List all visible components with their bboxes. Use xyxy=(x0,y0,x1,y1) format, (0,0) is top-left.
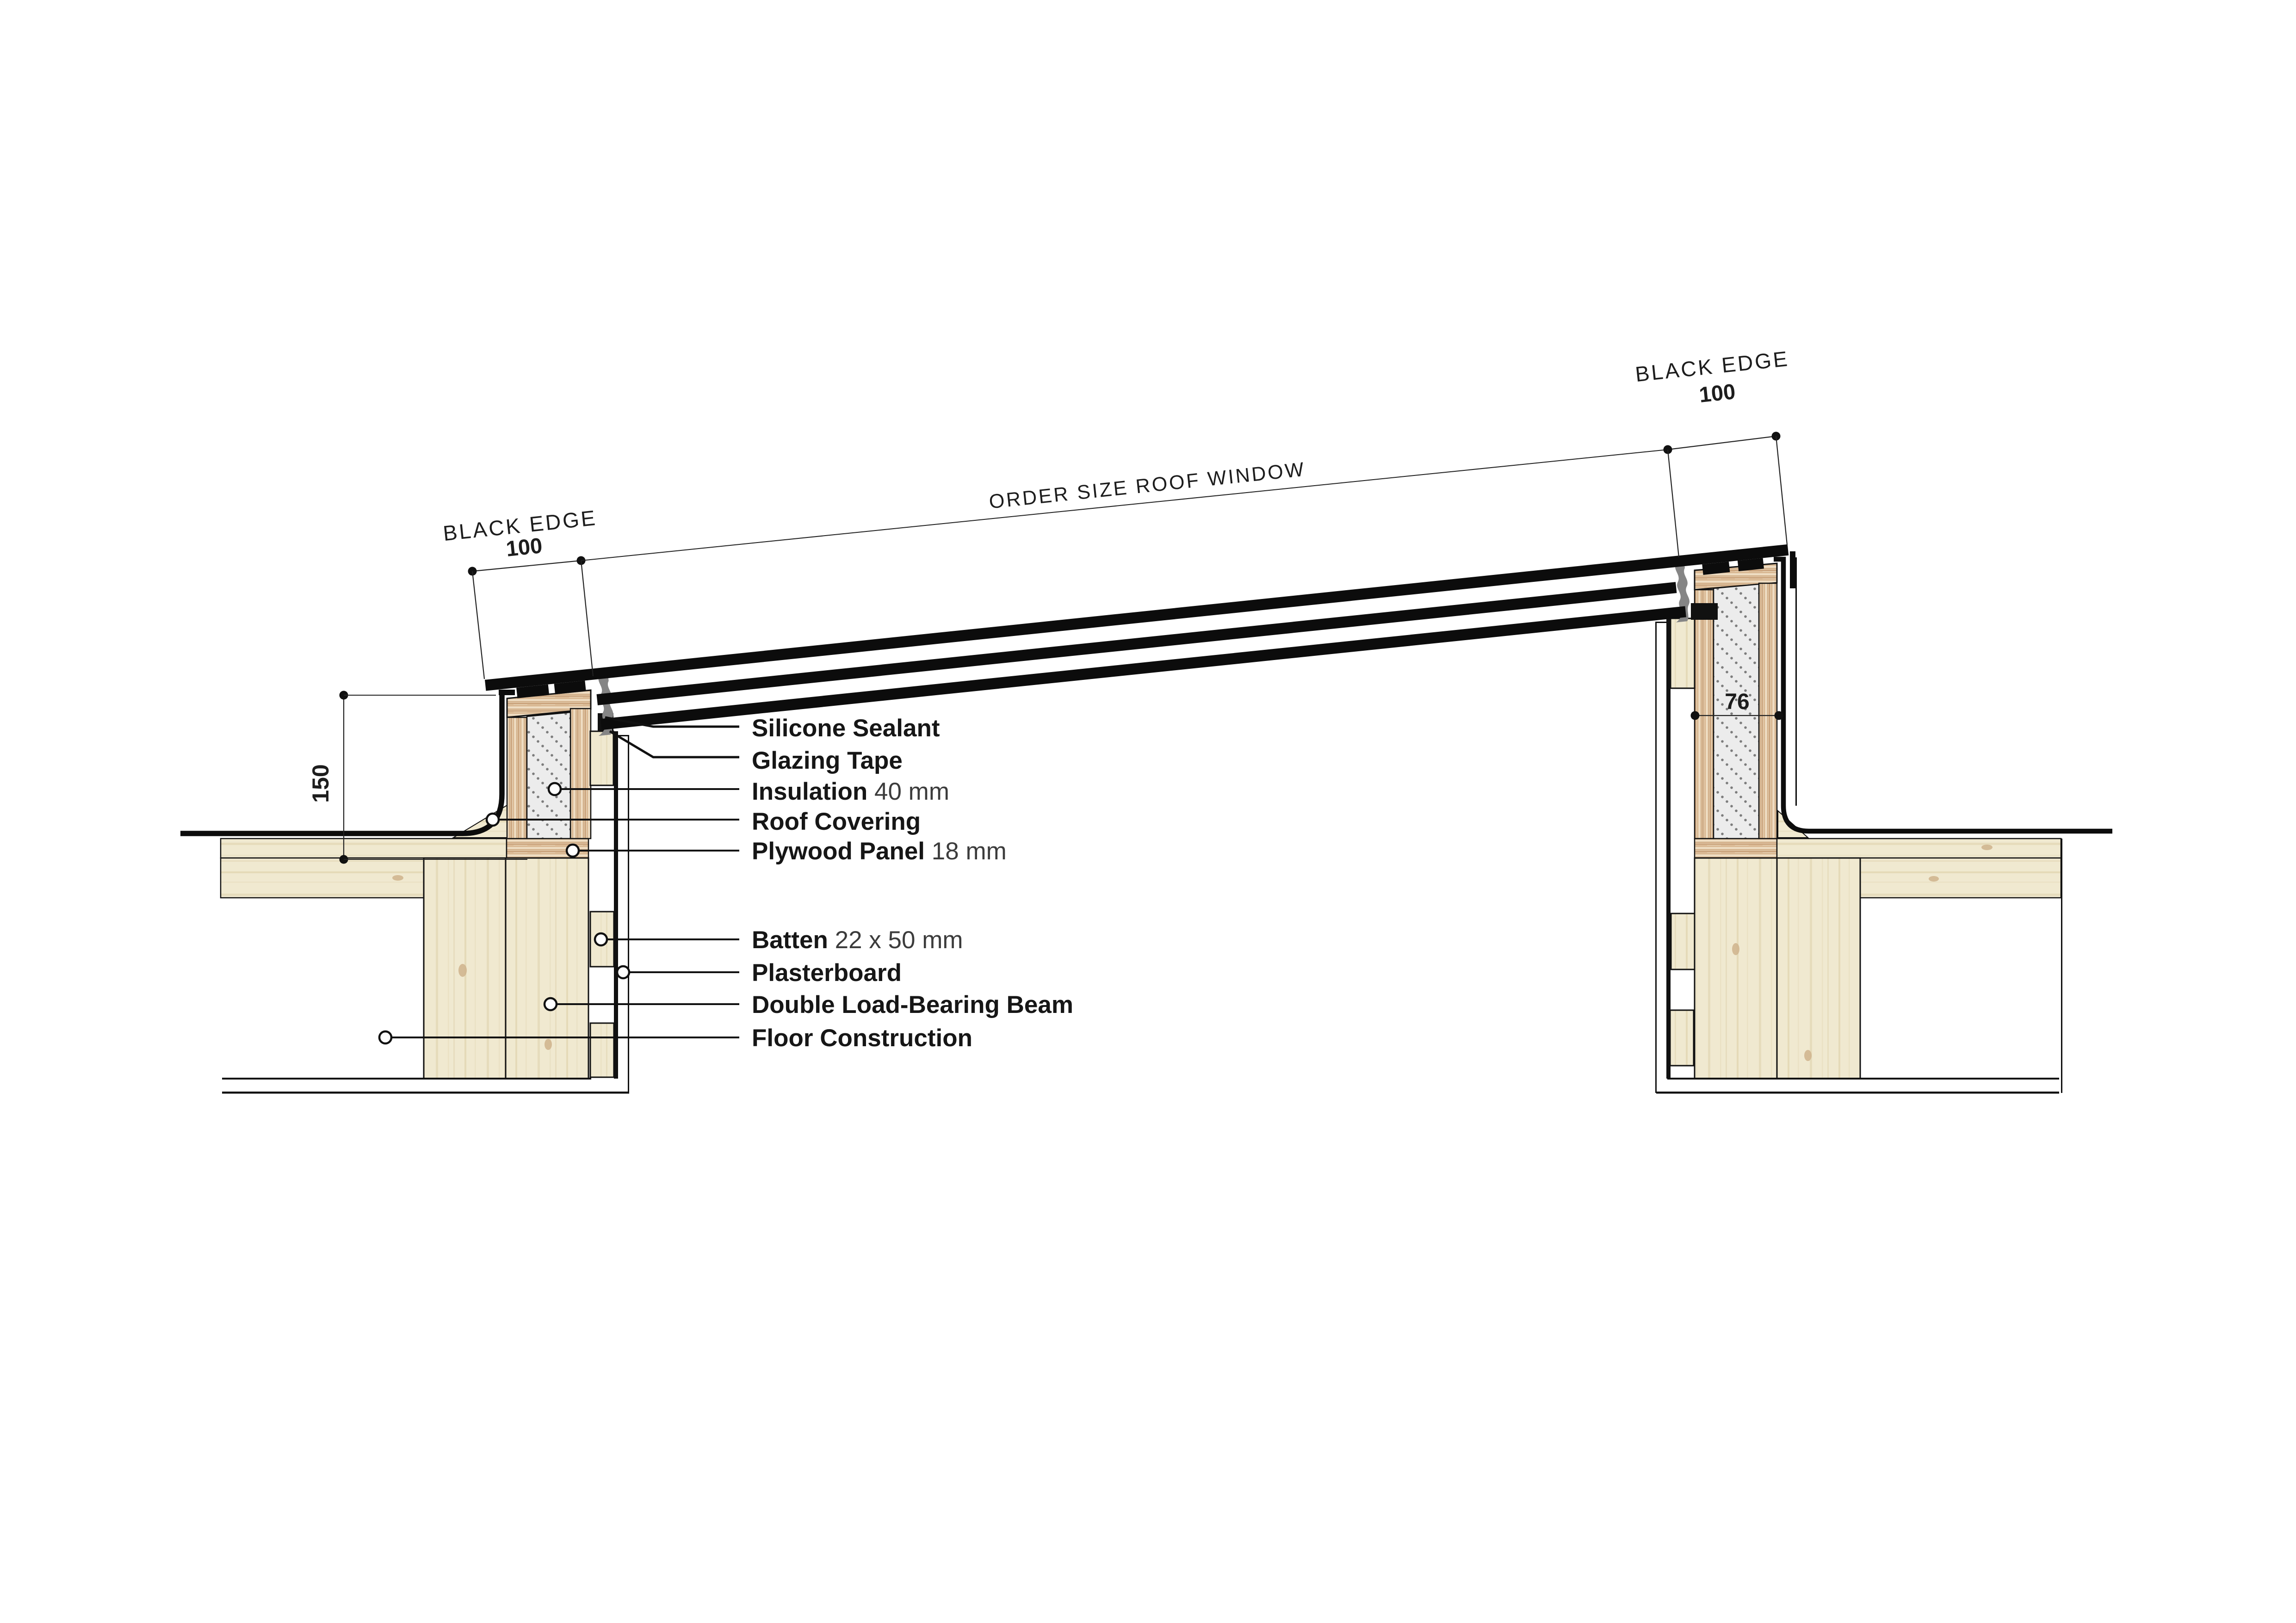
svg-text:Silicone Sealant: Silicone Sealant xyxy=(752,715,940,742)
svg-text:Insulation 40 mm: Insulation 40 mm xyxy=(752,778,949,805)
svg-text:Plywood Panel 18 mm: Plywood Panel 18 mm xyxy=(752,838,1007,865)
svg-text:Batten 22 x 50 mm: Batten 22 x 50 mm xyxy=(752,926,963,954)
svg-text:100: 100 xyxy=(1698,379,1736,407)
svg-text:150: 150 xyxy=(308,764,334,802)
svg-text:Plasterboard: Plasterboard xyxy=(752,959,902,987)
svg-text:Glazing Tape: Glazing Tape xyxy=(752,747,903,774)
svg-text:76: 76 xyxy=(1725,690,1749,714)
svg-text:100: 100 xyxy=(505,533,543,561)
svg-text:Roof Covering: Roof Covering xyxy=(752,808,921,835)
svg-text:Double Load-Bearing Beam: Double Load-Bearing Beam xyxy=(752,991,1073,1018)
svg-text:Floor Construction: Floor Construction xyxy=(752,1024,972,1052)
